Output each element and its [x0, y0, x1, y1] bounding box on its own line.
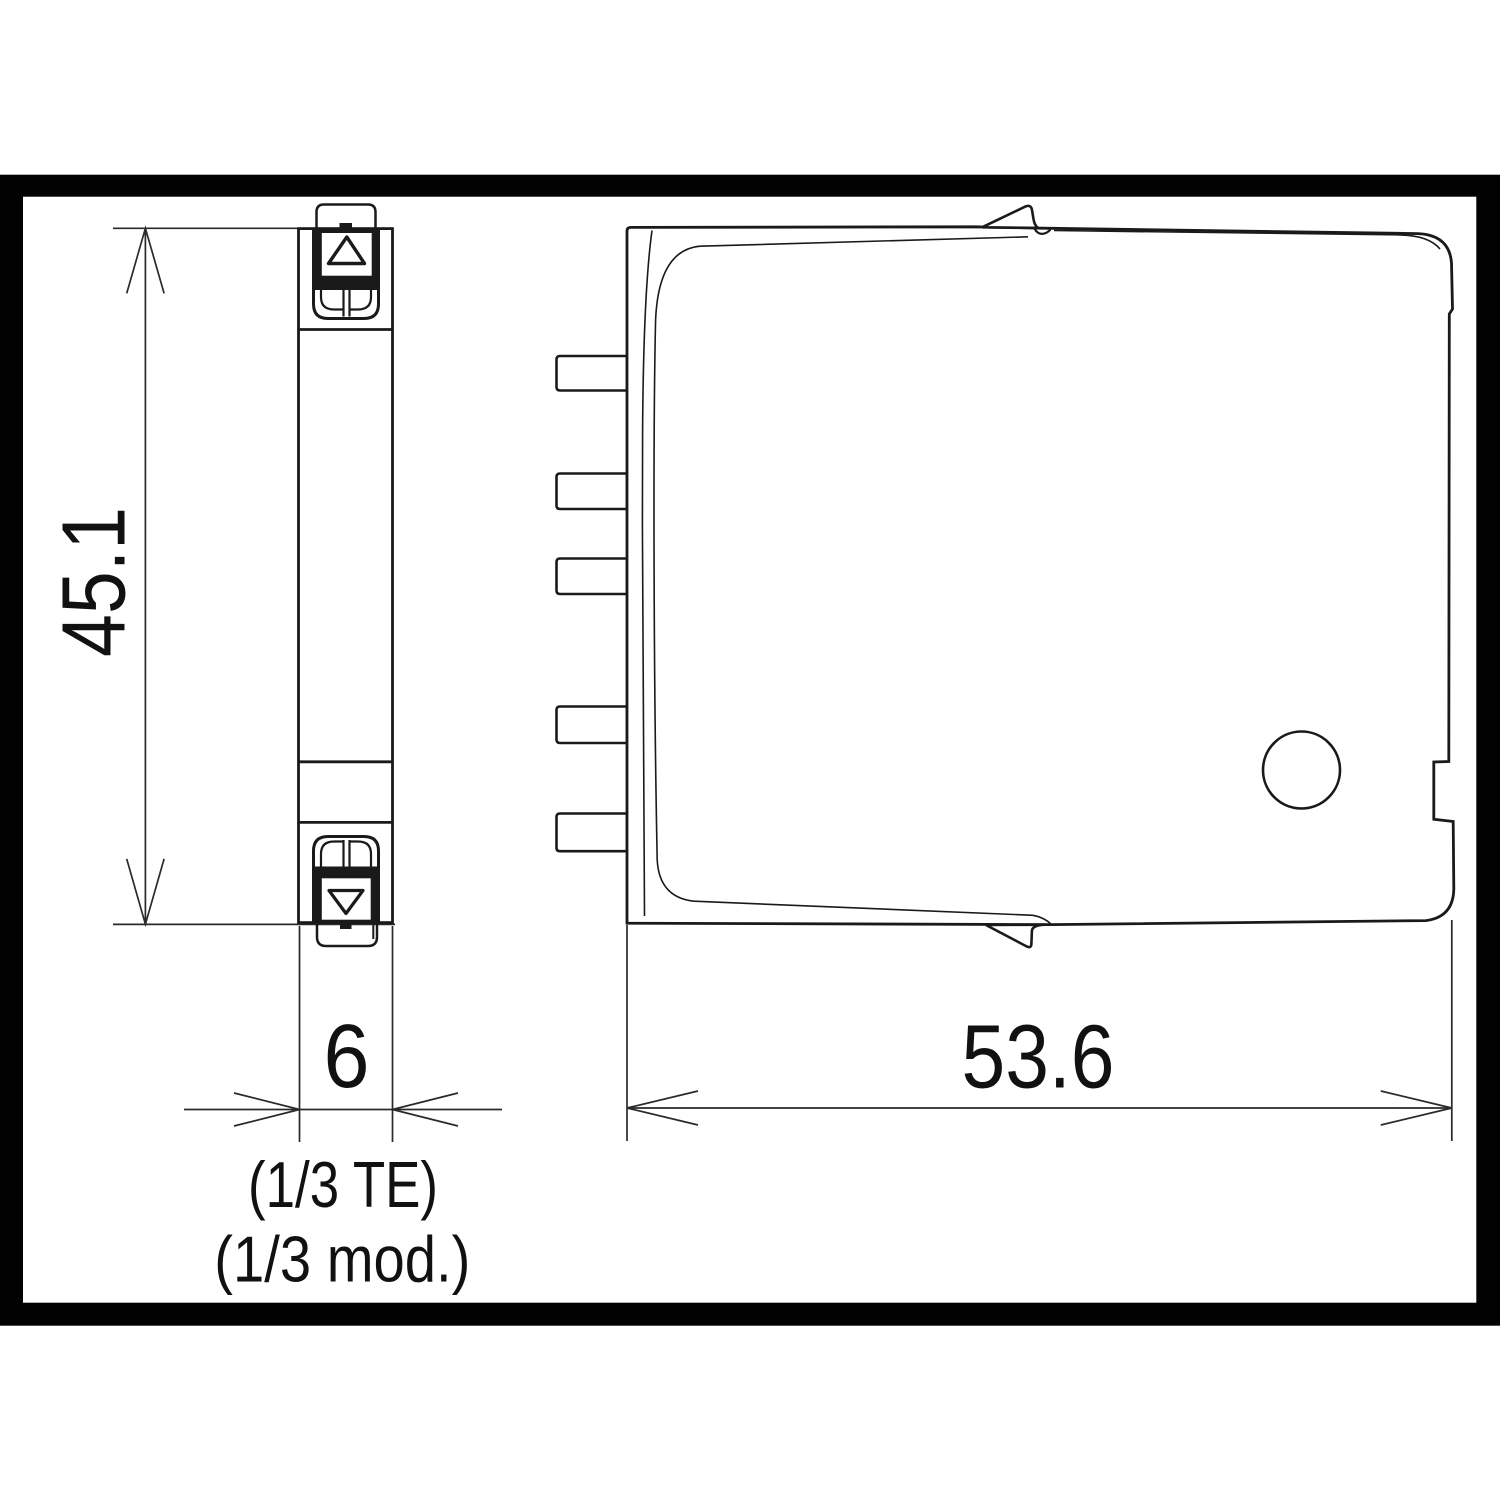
svg-text:45.1: 45.1 — [45, 507, 145, 657]
svg-text:6: 6 — [324, 1007, 370, 1107]
svg-text:(1/3 TE): (1/3 TE) — [248, 1148, 438, 1221]
svg-text:53.6: 53.6 — [962, 1008, 1115, 1108]
svg-text:(1/3 mod.): (1/3 mod.) — [214, 1223, 470, 1296]
